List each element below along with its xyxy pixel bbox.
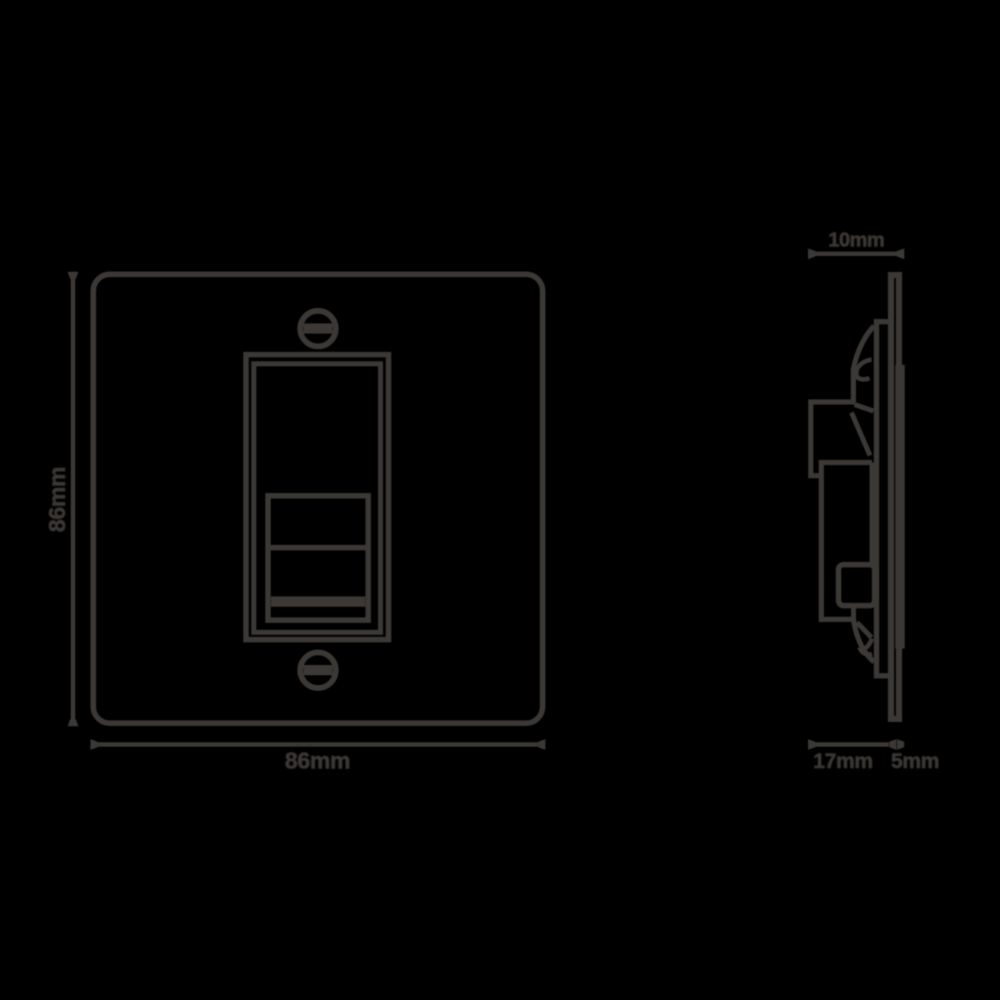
svg-text:86mm: 86mm — [44, 467, 70, 532]
svg-text:5mm: 5mm — [891, 750, 939, 773]
svg-text:17mm: 17mm — [813, 750, 873, 773]
svg-text:86mm: 86mm — [285, 747, 350, 773]
svg-text:10mm: 10mm — [828, 230, 884, 252]
